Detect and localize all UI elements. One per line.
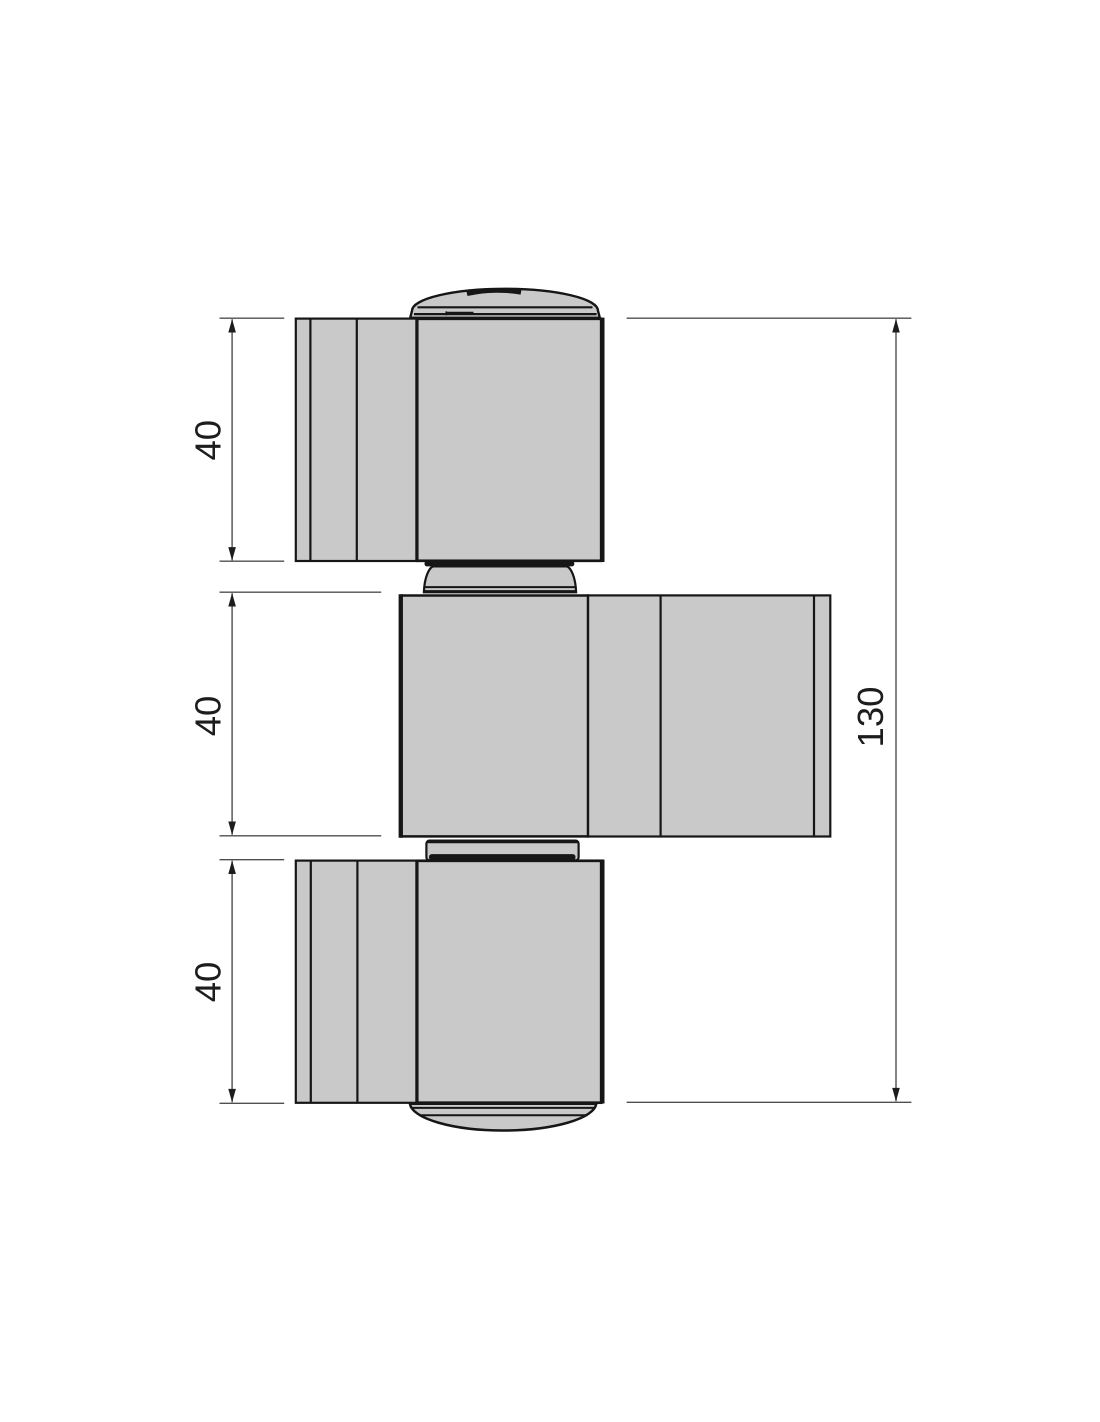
svg-text:40: 40 <box>187 420 228 461</box>
svg-text:40: 40 <box>187 696 228 737</box>
svg-text:40: 40 <box>187 962 228 1003</box>
svg-text:130: 130 <box>850 687 891 748</box>
